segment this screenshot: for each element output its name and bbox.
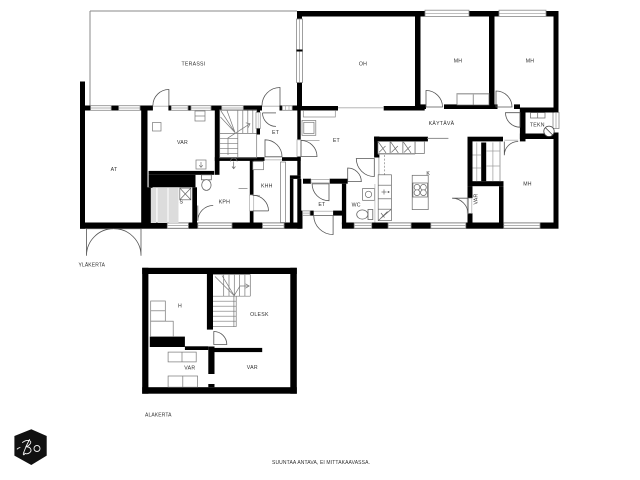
svg-text:TERASSI: TERASSI (182, 62, 206, 68)
svg-text:MH: MH (523, 182, 532, 188)
svg-text:ET: ET (333, 138, 341, 144)
svg-text:H: H (178, 304, 182, 310)
svg-text:ALAKERTA: ALAKERTA (145, 413, 172, 419)
svg-text:VAR: VAR (474, 193, 480, 204)
svg-text:KPH: KPH (219, 199, 230, 205)
svg-text:TEKN: TEKN (530, 123, 545, 129)
svg-text:MH: MH (454, 59, 463, 65)
svg-text:AT: AT (111, 167, 118, 173)
svg-text:YLÄKERTA: YLÄKERTA (79, 262, 106, 269)
svg-text:K: K (426, 171, 430, 177)
svg-text:WC: WC (352, 203, 361, 209)
svg-text:VAR: VAR (177, 140, 188, 146)
svg-text:ET: ET (318, 202, 326, 208)
svg-text:ET: ET (272, 130, 280, 136)
svg-text:VAR: VAR (184, 366, 195, 372)
svg-text:OLESK: OLESK (250, 312, 269, 318)
svg-text:OH: OH (359, 62, 367, 68)
svg-text:KÄYTÄVÄ: KÄYTÄVÄ (429, 120, 455, 127)
svg-text:MH: MH (526, 59, 535, 65)
svg-text:KHH: KHH (261, 183, 273, 189)
svg-text:S: S (180, 200, 184, 206)
svg-text:SUUNTAA ANTAVA, EI MITTAKAAVAS: SUUNTAA ANTAVA, EI MITTAKAAVASSA. (272, 460, 370, 466)
svg-text:VAR: VAR (247, 365, 258, 371)
